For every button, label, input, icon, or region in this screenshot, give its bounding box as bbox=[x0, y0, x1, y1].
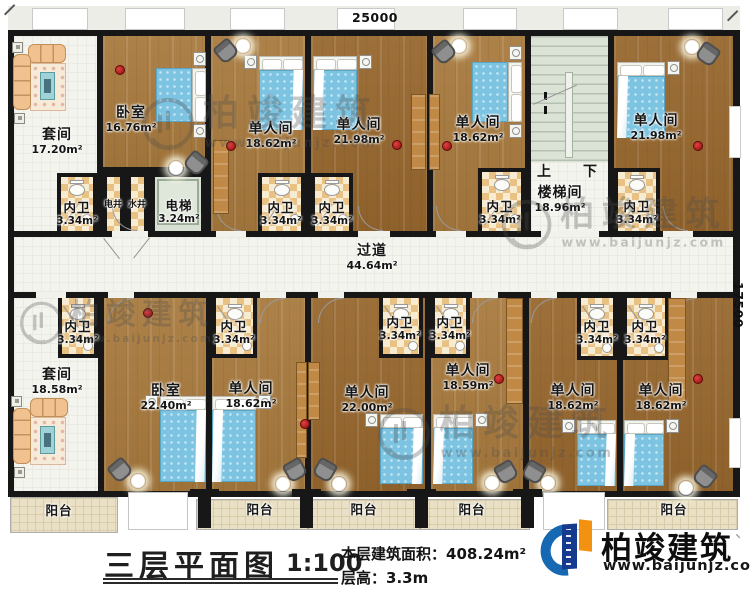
closet-icon bbox=[213, 140, 229, 214]
room-label: 阳台 bbox=[458, 503, 485, 517]
room-name: 套间 bbox=[31, 368, 82, 383]
room-name: 阳台 bbox=[660, 503, 687, 517]
room-name: 阳台 bbox=[350, 503, 377, 517]
room-label: 内卫3.34m² bbox=[576, 320, 617, 346]
column-marker bbox=[292, 489, 321, 497]
toilet-icon bbox=[69, 184, 85, 196]
room-name: 单人间 bbox=[547, 384, 598, 399]
room-name: 套间 bbox=[31, 128, 82, 143]
window-opening bbox=[668, 8, 723, 30]
pillow bbox=[620, 65, 642, 76]
pillow bbox=[646, 423, 664, 434]
nightstand-icon bbox=[193, 52, 206, 66]
nightstand-icon bbox=[666, 419, 679, 433]
pillow bbox=[283, 59, 303, 70]
window-opening bbox=[463, 8, 517, 30]
room-area: 44.64m² bbox=[346, 260, 397, 272]
watermark: 柏竣建筑www.baijunjz.com bbox=[20, 300, 214, 345]
pillow bbox=[511, 94, 522, 122]
nightstand-icon bbox=[244, 55, 257, 69]
pillow bbox=[316, 59, 336, 70]
column-marker bbox=[190, 489, 219, 497]
room-name: 内卫 bbox=[213, 320, 254, 334]
closet-icon bbox=[411, 94, 426, 170]
pillow bbox=[627, 423, 645, 434]
watermark-text: 柏竣建筑 bbox=[70, 300, 214, 330]
room-area: 3.34m² bbox=[576, 335, 617, 346]
room-label: 内卫3.34m² bbox=[379, 316, 420, 342]
coffee-table-icon bbox=[40, 72, 55, 100]
room-name: 单人间 bbox=[452, 116, 503, 131]
room-name: 内卫 bbox=[379, 316, 420, 330]
coffee-table-icon bbox=[40, 426, 55, 454]
room-label: 套间18.58m² bbox=[31, 368, 82, 396]
room-area: 21.98m² bbox=[630, 130, 681, 142]
room-name: 内卫 bbox=[624, 320, 665, 334]
room-area: 3.34m² bbox=[429, 331, 470, 342]
stair-down-label: 下 bbox=[583, 161, 597, 181]
floor-area-label: 本层建筑面积： bbox=[341, 545, 446, 563]
room-name: 内卫 bbox=[576, 320, 617, 334]
room-label: 阳台 bbox=[350, 503, 377, 517]
side-table-icon bbox=[11, 396, 22, 407]
room-label: 内卫3.34m² bbox=[429, 316, 470, 342]
room-area: 3.34m² bbox=[213, 335, 254, 346]
room-name: 电梯 bbox=[158, 199, 199, 213]
watermark-text: 柏竣建筑 bbox=[439, 406, 615, 442]
room-name: 单人间 bbox=[225, 382, 276, 397]
watermark-logo-icon bbox=[142, 98, 194, 150]
room-area: 18.59m² bbox=[442, 380, 493, 392]
top-dimension-label: 25000 bbox=[340, 10, 410, 25]
watermark-url: www.baijunjz.com bbox=[70, 333, 214, 345]
room-label: 单人间21.98m² bbox=[630, 114, 681, 142]
door-gap bbox=[216, 231, 246, 237]
closet-icon bbox=[506, 298, 523, 404]
side-table-icon bbox=[14, 113, 25, 124]
door-gap bbox=[436, 231, 466, 237]
wall-dot-icon bbox=[115, 65, 125, 75]
wall-dot-icon bbox=[693, 141, 703, 151]
bed-icon bbox=[472, 62, 522, 122]
room-label: 套间17.20m² bbox=[31, 128, 82, 156]
watermark-url: www.baijunjz.com bbox=[560, 236, 727, 250]
window-opening bbox=[125, 8, 185, 30]
sink-icon bbox=[408, 341, 418, 351]
watermark-url: www.baijunjz.com bbox=[439, 446, 615, 461]
watermark: 柏竣建筑www.baijunjz.com bbox=[142, 96, 379, 151]
room-label: 过道44.64m² bbox=[346, 244, 397, 272]
toilet-icon bbox=[494, 179, 510, 191]
bed-fold bbox=[195, 410, 206, 482]
room-name: 电井 bbox=[104, 201, 122, 211]
room-label: 阳台 bbox=[246, 503, 273, 517]
toilet-icon bbox=[274, 184, 290, 196]
stair-up-label: 上 bbox=[537, 161, 551, 181]
watermark-url: www.baijunjz.com bbox=[203, 136, 379, 151]
watermark: 柏竣建筑www.baijunjz.com bbox=[378, 406, 615, 461]
nightstand-icon bbox=[365, 413, 378, 427]
watermark-text: 柏竣建筑 bbox=[203, 96, 379, 132]
room-label: 阳台 bbox=[660, 503, 687, 517]
room-name: 单人间 bbox=[442, 364, 493, 379]
room-area: 3.34m² bbox=[260, 216, 301, 227]
floor-height-label: 层高： bbox=[341, 569, 386, 587]
side-table-icon bbox=[14, 467, 25, 478]
sofa-icon bbox=[30, 398, 68, 417]
floor-area-value: 408.24m² bbox=[446, 545, 526, 563]
room-area: 17.20m² bbox=[31, 144, 82, 156]
floor-plan-canvas: 25000 17500 三层平面图 1:100 本层建筑面积：408.24m² … bbox=[0, 0, 750, 589]
balcony-opening bbox=[128, 492, 188, 530]
room-name: 过道 bbox=[346, 244, 397, 259]
room-label: 单人间18.62m² bbox=[635, 384, 686, 412]
wall-dot-icon bbox=[693, 374, 703, 384]
room-area: 3.34m² bbox=[379, 331, 420, 342]
bed-icon bbox=[624, 420, 664, 486]
title-underline bbox=[103, 578, 338, 580]
room-name: 单人间 bbox=[630, 114, 681, 129]
pillow-strip bbox=[624, 420, 664, 434]
stair-arrow-tick bbox=[544, 106, 547, 114]
sofa-icon bbox=[13, 54, 31, 110]
brand-url: www.baijunjz.com bbox=[603, 558, 750, 574]
stair-rail bbox=[565, 72, 573, 158]
sink-icon bbox=[455, 341, 465, 351]
floor-height-value: 3.3m bbox=[386, 569, 428, 587]
room-name: 卧室 bbox=[140, 384, 191, 399]
room-name: 单人间 bbox=[341, 386, 392, 401]
closet-icon bbox=[296, 362, 307, 458]
toilet-icon bbox=[324, 184, 340, 196]
floor-area-text: 本层建筑面积：408.24m² bbox=[341, 543, 526, 564]
room-name: 内卫 bbox=[56, 201, 97, 215]
pillow bbox=[511, 65, 522, 93]
room-area: 18.62m² bbox=[452, 132, 503, 144]
ceiling-lamp-icon bbox=[130, 473, 146, 489]
room-label: 单人间18.59m² bbox=[442, 364, 493, 392]
toilet-icon bbox=[629, 179, 645, 191]
brand-logo-icon bbox=[541, 517, 603, 585]
sofa-icon bbox=[13, 408, 31, 464]
room-name: 内卫 bbox=[429, 316, 470, 330]
bed-fold bbox=[617, 76, 628, 138]
bed-fold bbox=[212, 410, 223, 482]
ceiling-lamp-icon bbox=[331, 476, 347, 492]
closet-icon bbox=[308, 362, 320, 420]
room-name: 阳台 bbox=[246, 503, 273, 517]
nightstand-icon bbox=[509, 46, 522, 60]
closet-icon bbox=[429, 94, 440, 170]
mattress bbox=[472, 62, 508, 122]
room-name: 阳台 bbox=[458, 503, 485, 517]
room-label: 内卫3.34m² bbox=[260, 201, 301, 227]
room-area: 3.34m² bbox=[311, 216, 352, 227]
room-label: 单人间18.62m² bbox=[452, 116, 503, 144]
room-area: 18.58m² bbox=[31, 384, 82, 396]
side-table-icon bbox=[12, 42, 23, 53]
room-name: 内卫 bbox=[260, 201, 301, 215]
wall-dot-icon bbox=[494, 374, 504, 384]
room-area: 3.34m² bbox=[624, 335, 665, 346]
watermark-logo-icon bbox=[378, 408, 430, 460]
room-label: 卧室22.40m² bbox=[140, 384, 191, 412]
watermark-logo-icon bbox=[20, 301, 63, 344]
bed-fold bbox=[624, 434, 635, 486]
column-marker bbox=[513, 489, 542, 497]
pillow-strip bbox=[617, 62, 665, 76]
pillow-strip bbox=[259, 56, 303, 70]
room-area: 3.34m² bbox=[56, 216, 97, 227]
ceiling-lamp-icon bbox=[168, 160, 184, 176]
pillow-strip bbox=[508, 62, 522, 122]
nightstand-icon bbox=[667, 61, 680, 75]
title-underline bbox=[103, 582, 338, 584]
right-dimension-label: 17500 bbox=[731, 282, 746, 328]
logo-building-blue-icon bbox=[562, 523, 577, 569]
nightstand-icon bbox=[359, 55, 372, 69]
pillow bbox=[643, 65, 665, 76]
room-label: 电梯3.24m² bbox=[158, 199, 199, 225]
sofa-icon bbox=[28, 44, 66, 63]
room-area: 22.40m² bbox=[140, 400, 191, 412]
room-label: 阳台 bbox=[45, 504, 72, 518]
window-opening bbox=[729, 106, 741, 158]
window-opening bbox=[729, 418, 741, 468]
wall-dot-icon bbox=[442, 141, 452, 151]
brand-tick-mark: 、 bbox=[735, 521, 750, 542]
wall-dot-icon bbox=[300, 419, 310, 429]
window-opening bbox=[230, 8, 285, 30]
room-name: 水井 bbox=[128, 201, 146, 211]
logo-building-orange-icon bbox=[579, 519, 592, 552]
room-label: 内卫3.34m² bbox=[311, 201, 352, 227]
window-opening bbox=[563, 8, 618, 30]
nightstand-icon bbox=[509, 124, 522, 138]
door-gap bbox=[112, 231, 148, 237]
room-name: 阳台 bbox=[45, 504, 72, 518]
watermark: 柏竣建筑www.baijunjz.com bbox=[502, 198, 727, 250]
pillow bbox=[262, 59, 282, 70]
room-label: 水井 bbox=[128, 201, 146, 211]
room-label: 内卫3.34m² bbox=[56, 201, 97, 227]
column-marker bbox=[407, 489, 436, 497]
room-name: 单人间 bbox=[635, 384, 686, 399]
room-label: 电井 bbox=[104, 201, 122, 211]
window-opening bbox=[32, 8, 88, 30]
door-gap bbox=[358, 231, 390, 237]
room-area: 18.62m² bbox=[635, 400, 686, 412]
room-label: 单人间18.62m² bbox=[225, 382, 276, 410]
watermark-text: 柏竣建筑 bbox=[560, 198, 727, 232]
room-name: 内卫 bbox=[311, 201, 352, 215]
ceiling-lamp-icon bbox=[678, 480, 694, 496]
room-area: 3.24m² bbox=[158, 214, 199, 225]
floor-height-text: 层高：3.3m bbox=[341, 567, 428, 588]
pillow-strip bbox=[313, 56, 357, 70]
wall-dot-icon bbox=[392, 140, 402, 150]
room-label: 内卫3.34m² bbox=[624, 320, 665, 346]
watermark-logo-icon bbox=[502, 199, 551, 248]
room-area: 18.62m² bbox=[225, 398, 276, 410]
pillow bbox=[337, 59, 357, 70]
room-label: 内卫3.34m² bbox=[213, 320, 254, 346]
